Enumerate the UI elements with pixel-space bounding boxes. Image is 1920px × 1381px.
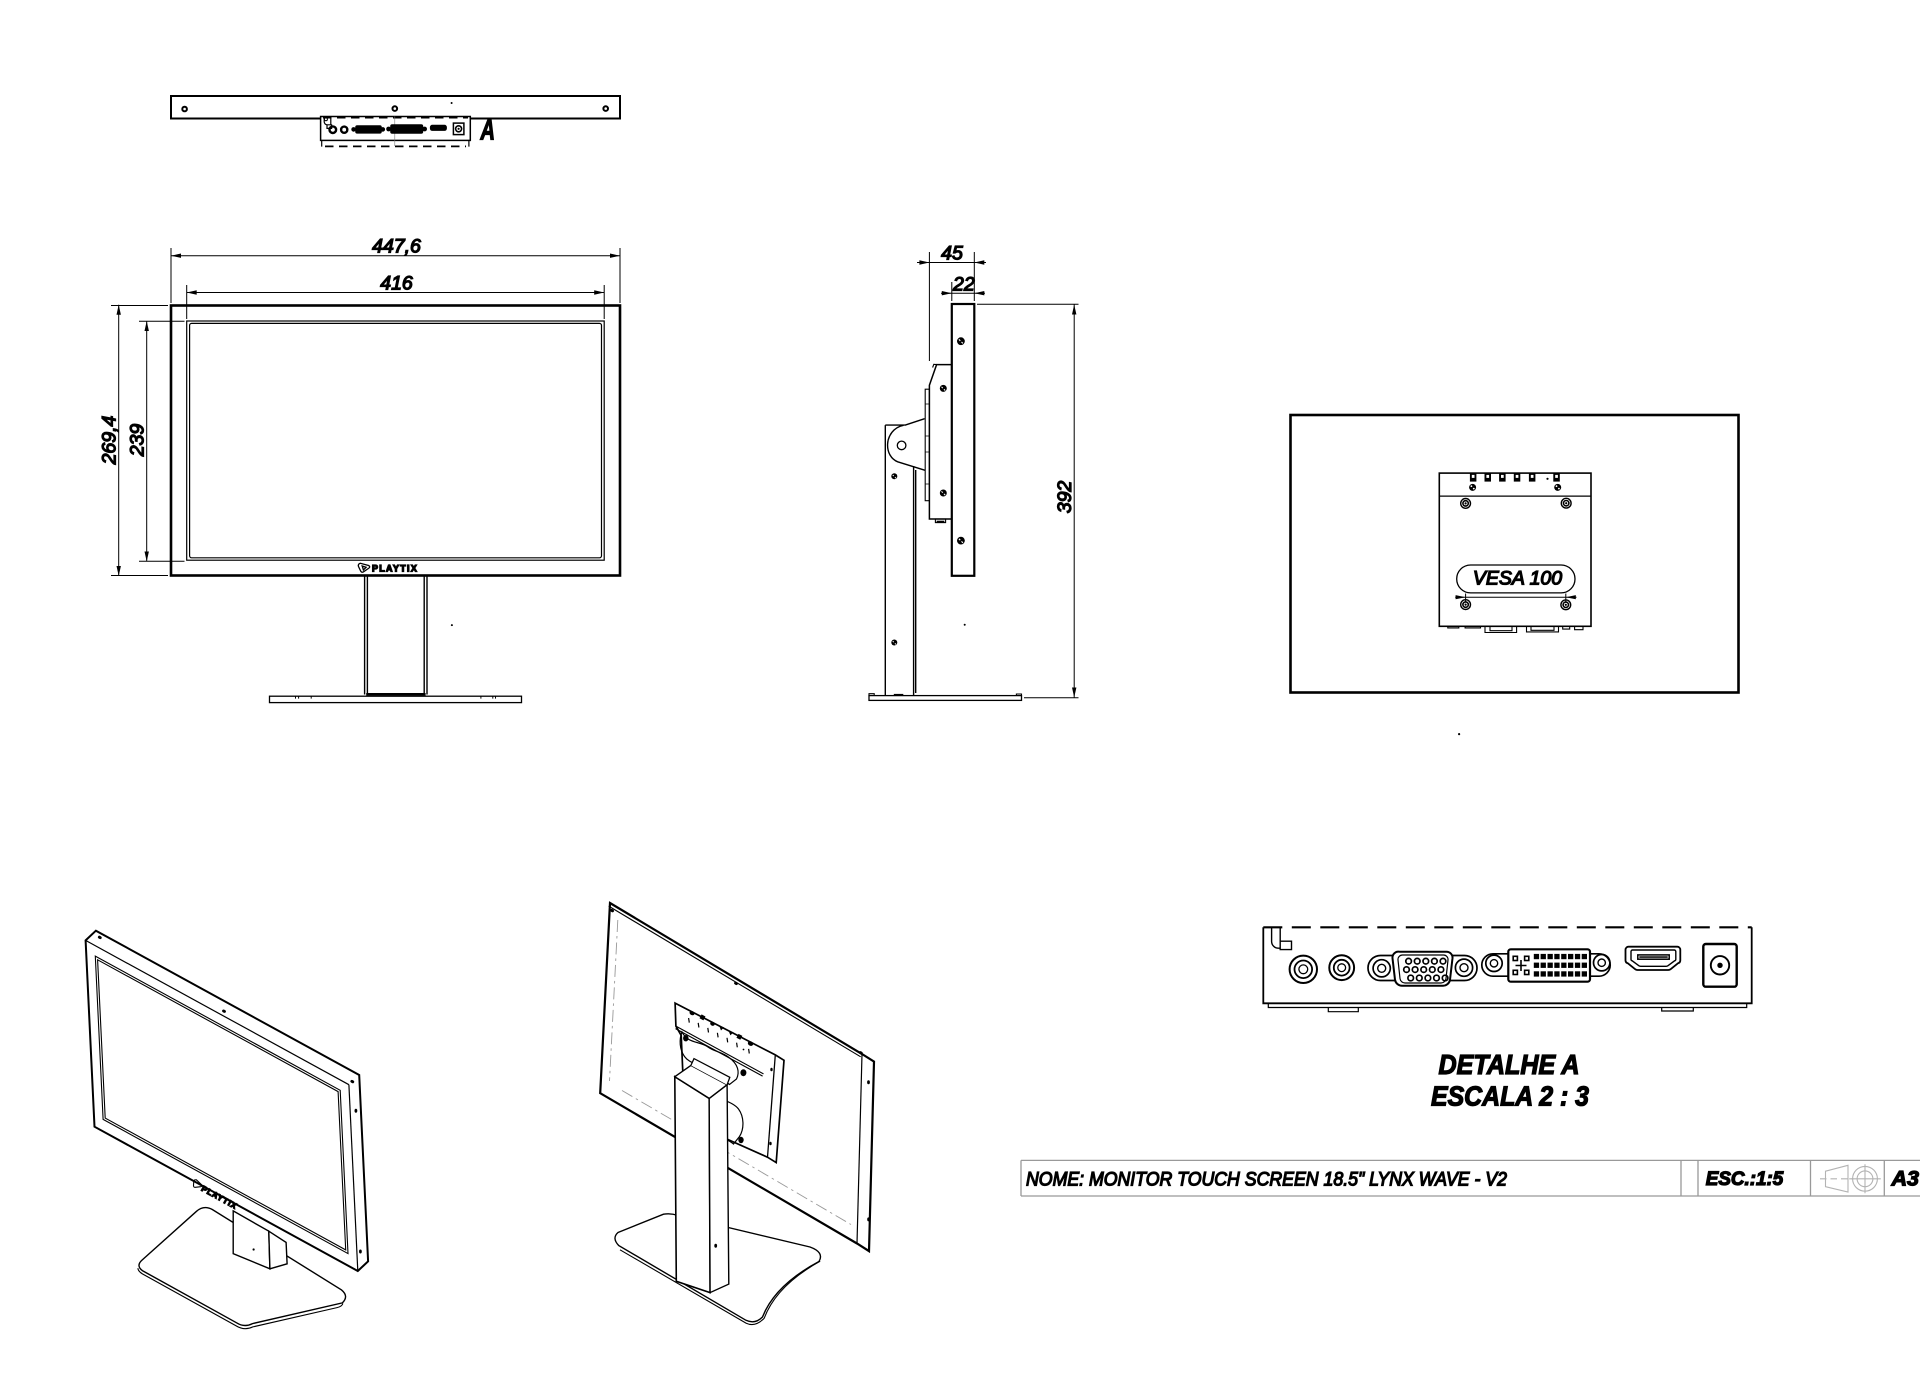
svg-text:PLAYTIX: PLAYTIX — [372, 563, 418, 573]
svg-text:416: 416 — [380, 272, 413, 294]
svg-text:392: 392 — [1054, 481, 1076, 514]
svg-text:A: A — [480, 115, 495, 147]
svg-text:447,6: 447,6 — [372, 236, 421, 258]
svg-text:ESC.:1:5: ESC.:1:5 — [1706, 1168, 1784, 1190]
svg-text:22: 22 — [952, 273, 975, 295]
svg-text:VESA 100: VESA 100 — [1473, 567, 1562, 589]
svg-text:239: 239 — [127, 424, 149, 458]
svg-text:269,4: 269,4 — [99, 415, 121, 465]
svg-text:A3: A3 — [1891, 1167, 1920, 1191]
svg-text:45: 45 — [941, 243, 963, 265]
svg-text:NOME: MONITOR TOUCH SCREEN 18.: NOME: MONITOR TOUCH SCREEN 18.5" LYNX WA… — [1026, 1169, 1507, 1191]
svg-text:DETALHE A: DETALHE A — [1439, 1049, 1580, 1080]
svg-text:ESCALA 2 : 3: ESCALA 2 : 3 — [1431, 1081, 1589, 1112]
